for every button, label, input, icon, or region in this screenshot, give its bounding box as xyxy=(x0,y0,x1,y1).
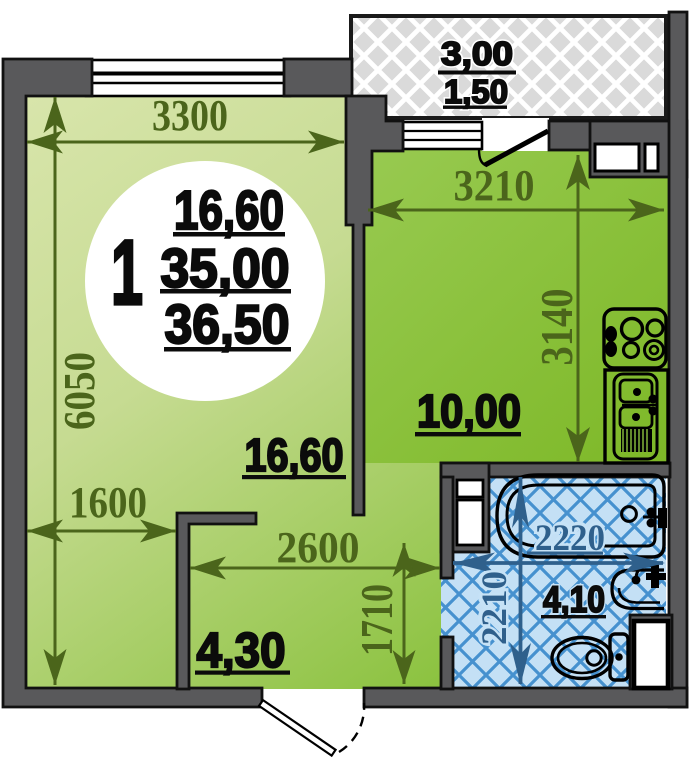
svg-text:36,50: 36,50 xyxy=(165,293,290,355)
svg-text:16,60: 16,60 xyxy=(174,179,284,241)
svg-text:3,00: 3,00 xyxy=(441,35,513,72)
svg-text:3140: 3140 xyxy=(532,289,582,366)
svg-text:1710: 1710 xyxy=(352,584,402,656)
svg-text:3300: 3300 xyxy=(152,91,228,140)
svg-text:10,00: 10,00 xyxy=(417,385,521,437)
svg-text:4,10: 4,10 xyxy=(543,579,605,620)
svg-text:3210: 3210 xyxy=(454,161,535,210)
svg-text:1,50: 1,50 xyxy=(444,73,508,110)
svg-text:4,30: 4,30 xyxy=(197,624,286,678)
svg-text:1: 1 xyxy=(111,222,143,324)
svg-text:6050: 6050 xyxy=(55,352,104,430)
svg-text:2600: 2600 xyxy=(277,523,360,572)
svg-text:1600: 1600 xyxy=(69,478,147,527)
svg-text:2210: 2210 xyxy=(474,571,514,645)
svg-text:16,60: 16,60 xyxy=(245,429,344,481)
